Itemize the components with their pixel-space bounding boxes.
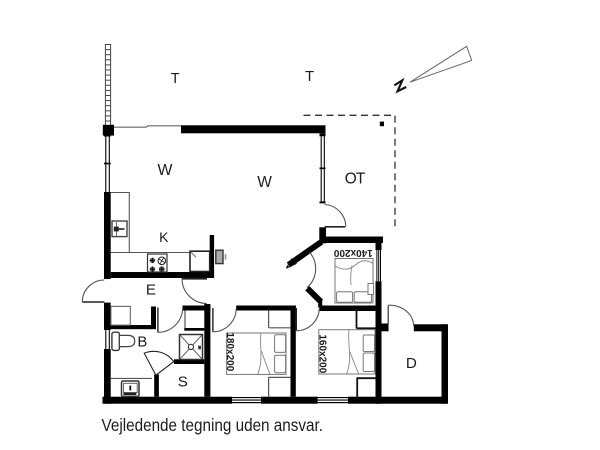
- svg-text:E: E: [146, 282, 156, 299]
- svg-text:D: D: [406, 355, 417, 372]
- svg-text:T: T: [305, 69, 314, 85]
- svg-text:W: W: [257, 174, 272, 191]
- svg-text:S: S: [178, 373, 188, 390]
- svg-text:T: T: [171, 71, 180, 87]
- svg-text:B: B: [137, 335, 147, 351]
- svg-text:140x200: 140x200: [333, 247, 372, 258]
- svg-text:OT: OT: [345, 171, 366, 188]
- svg-text:K: K: [159, 229, 169, 245]
- svg-text:180x200: 180x200: [224, 332, 235, 371]
- svg-text:Vejledende tegning uden ansvar: Vejledende tegning uden ansvar.: [102, 415, 324, 435]
- svg-text:W: W: [158, 162, 173, 179]
- svg-text:160x200: 160x200: [316, 334, 327, 373]
